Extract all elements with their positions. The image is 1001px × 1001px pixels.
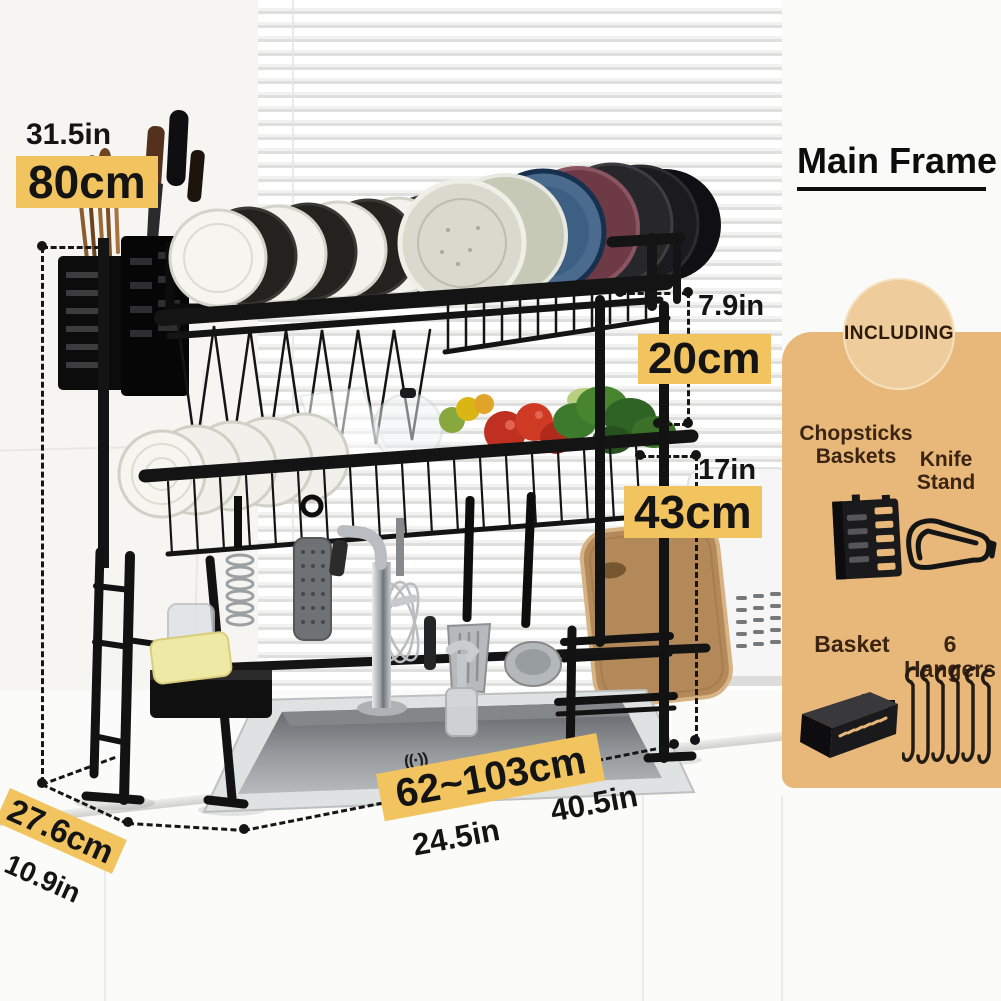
dim-dot	[635, 450, 645, 460]
dim-tier-in: 7.9in	[698, 292, 764, 321]
dim-dot	[239, 824, 249, 834]
dim-dot	[683, 287, 693, 297]
label-basket: Basket	[800, 632, 904, 657]
dim-line	[42, 246, 100, 249]
dim-lower-cm: 43cm	[624, 486, 762, 538]
product-infographic: ((·))	[0, 0, 1001, 1001]
dish-rack: ((·))	[58, 110, 721, 812]
dim-dot	[653, 418, 663, 428]
dim-dot	[690, 735, 700, 745]
dim-dot	[615, 287, 625, 297]
basket-icon	[792, 680, 906, 766]
dim-line	[41, 247, 44, 783]
faucet	[329, 531, 436, 716]
chopsticks-basket-icon	[826, 492, 908, 584]
including-badge: INCLUDING	[843, 278, 955, 390]
including-panel: Chopsticks Baskets Knife Stand Basket 6 …	[782, 332, 1001, 788]
dim-dot	[669, 739, 679, 749]
dim-dot	[37, 241, 47, 251]
dim-line	[640, 455, 696, 458]
label-knife-stand: Knife Stand	[890, 448, 1001, 494]
knife-stand-icon	[898, 510, 998, 576]
dim-height-cm: 80cm	[16, 156, 158, 208]
dim-tier-cm: 20cm	[638, 334, 771, 384]
panel-title-underline	[797, 187, 986, 191]
dim-height-in: 31.5in	[26, 120, 111, 150]
dim-line	[620, 292, 688, 295]
dim-lower-in: 17in	[698, 456, 756, 485]
dim-dot	[683, 418, 693, 428]
dim-dot	[123, 817, 133, 827]
panel-title: Main Frame	[797, 140, 997, 182]
hangers-icon	[902, 662, 998, 788]
